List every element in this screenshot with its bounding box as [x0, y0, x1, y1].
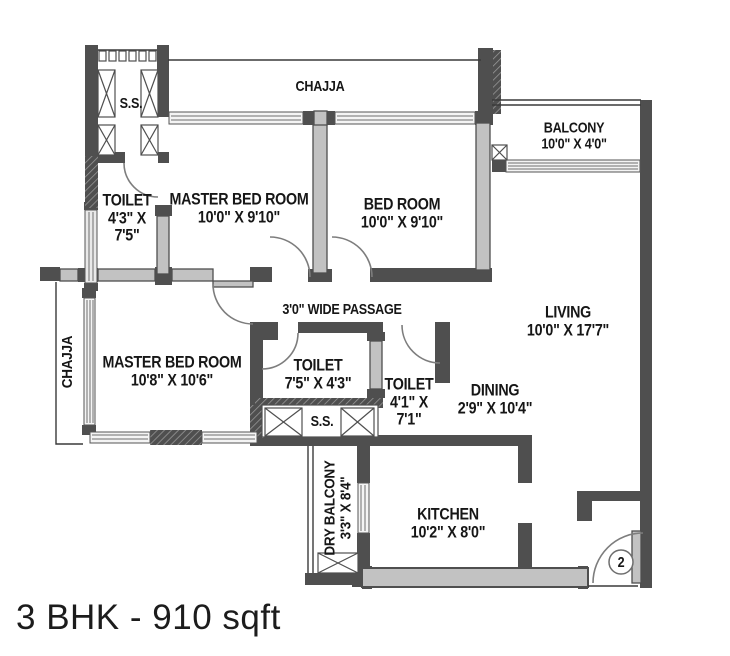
window-master-bed-2-bottom-2 [202, 432, 257, 443]
window-balcony-living [506, 160, 640, 172]
shaft-x-box [141, 70, 158, 117]
page-title: 3 BHK - 910 sqft [16, 598, 281, 638]
window-bed-room-top [335, 112, 475, 124]
label-ss-top: S.S. [120, 96, 143, 112]
label-ss-mid: S.S. [311, 414, 334, 430]
label-dining: DINING 2'9" X 10'4" [458, 381, 532, 416]
label-kitchen: KITCHEN 10'2" X 8'0" [411, 505, 485, 540]
label-chajja-top: CHAJJA [296, 79, 345, 95]
shaft-x-box [98, 70, 115, 117]
label-chajja-left: CHAJJA [60, 336, 76, 388]
label-toilet-mid: TOILET 7'5" X 4'3" [285, 356, 352, 391]
door-arc-toilet-right [402, 325, 440, 363]
door-arc-bed-room [332, 237, 372, 277]
window-dry-balcony-kitchen [358, 483, 369, 533]
window-master-bed-2-bottom-1 [90, 432, 150, 443]
label-balcony: BALCONY 10'0" X 4'0" [541, 120, 606, 151]
label-toilet-top: TOILET 4'3" X 7'5" [102, 191, 151, 244]
label-living: LIVING 10'0" X 17'7" [527, 303, 609, 338]
door-arc-master-bed-1 [270, 237, 310, 277]
window-toilet-top-left [85, 210, 97, 283]
shaft-x-box [265, 408, 302, 436]
shaft-x-box [341, 408, 374, 436]
shaft-x-box [141, 125, 158, 155]
floor-plan: S.S. CHAJJA BALCONY 10'0" X 4'0" TOILET … [0, 0, 730, 656]
shaft-x-box [98, 125, 115, 155]
shaft-x-box [492, 145, 507, 160]
crenellation [99, 51, 156, 61]
window-master-bed-2-left [84, 298, 95, 425]
label-master-bed-2: MASTER BED ROOM 10'8" X 10'6" [102, 353, 241, 388]
label-passage: 3'0" WIDE PASSAGE [282, 302, 401, 318]
label-dry-balcony: DRY BALCONY 3'3" X 8'4" [322, 460, 353, 555]
label-master-bed-1: MASTER BED ROOM 10'0" X 9'10" [169, 190, 308, 225]
entrance-door-number: 2 [618, 555, 625, 571]
label-toilet-right: TOILET 4'1" X 7'1" [384, 375, 433, 428]
window-master-bed-1-top [169, 112, 303, 124]
door-arc-master-bed-2 [213, 284, 253, 324]
label-bed-room: BED ROOM 10'0" X 9'10" [361, 195, 443, 230]
shaft-boxes [98, 70, 507, 573]
shaft-x-box [318, 553, 358, 573]
